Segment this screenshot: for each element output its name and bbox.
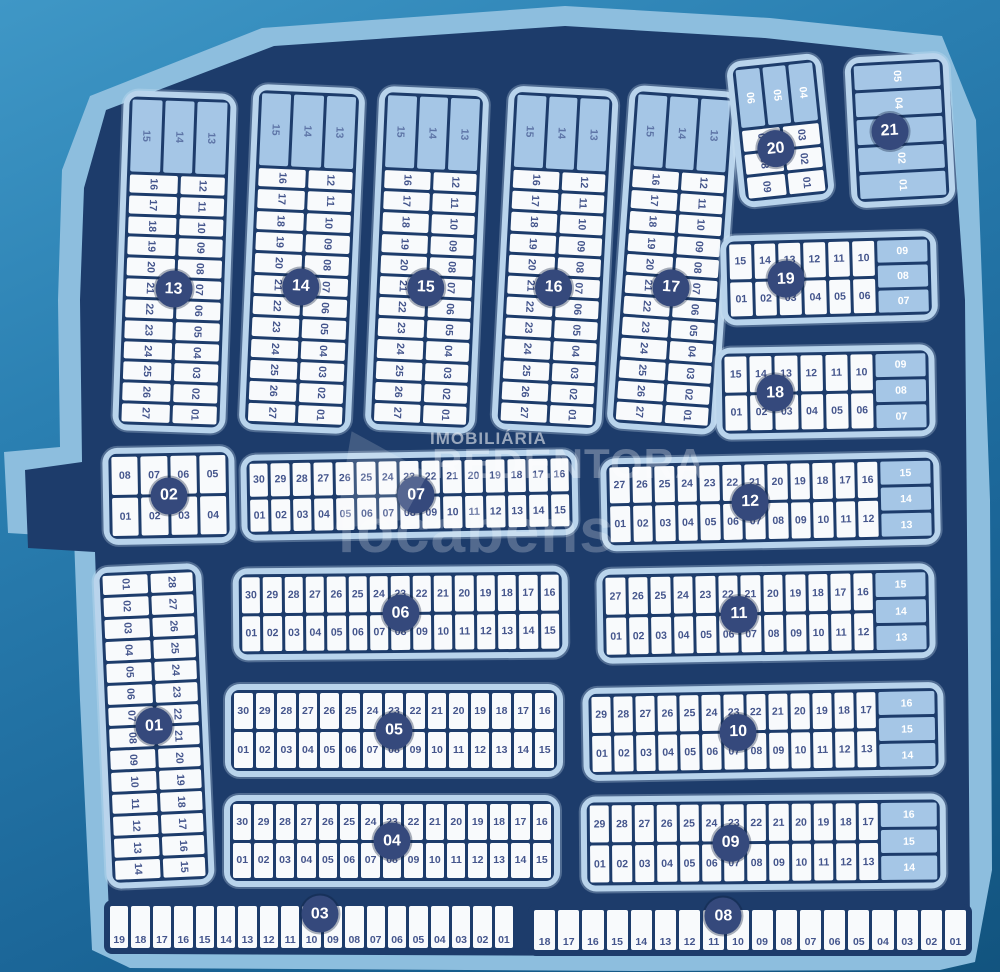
lot-cell: 03 — [104, 618, 150, 639]
lot-number: 01 — [188, 409, 200, 421]
lot-cell: 04 — [200, 496, 227, 534]
lot-cell: 20 — [791, 804, 811, 841]
lot-number: 16 — [901, 697, 913, 709]
lot-cell: 23 — [505, 318, 552, 339]
lot-cell: 03 — [293, 498, 312, 531]
lot-number: 01 — [735, 293, 747, 305]
lot-cell: 01 — [112, 498, 139, 536]
lot-number: 13 — [901, 519, 913, 531]
lot-number: 26 — [661, 708, 673, 720]
lot-number: 02 — [895, 152, 908, 164]
lot-number: 18 — [840, 816, 852, 828]
lot-number: 13 — [131, 841, 143, 853]
lot-number: 16 — [903, 809, 915, 821]
lot-cell: 13 — [881, 513, 931, 537]
lot-cell: 26 — [632, 466, 652, 502]
lot-cell: 01 — [592, 736, 612, 772]
lot-number: 10 — [858, 252, 870, 264]
lot-number: 14 — [555, 127, 568, 139]
lot-number: 17 — [839, 474, 851, 486]
lot-number: 10 — [813, 626, 825, 638]
lot-number: 03 — [659, 517, 671, 529]
lot-cell: 15 — [551, 494, 570, 527]
lot-number: 27 — [609, 590, 621, 602]
lot-number: 17 — [860, 704, 872, 716]
lot-number: 11 — [576, 198, 589, 210]
lot-cell: 02 — [299, 383, 344, 403]
lot-side: 090807 — [877, 239, 929, 312]
lot-cell: 02 — [633, 505, 653, 541]
lot-cell: 17 — [383, 191, 430, 211]
lot-cell: 15 — [881, 829, 937, 853]
lot-number: 10 — [856, 366, 868, 378]
lot-number: 26 — [661, 817, 673, 829]
lot-cell: 02 — [921, 910, 942, 950]
lot-number: 23 — [699, 588, 711, 600]
lot-number: 09 — [790, 627, 802, 639]
lot-number: 01 — [120, 511, 132, 523]
lot-cell: 30 — [234, 693, 253, 729]
lot-cell: 11 — [432, 193, 476, 213]
lot-number: 06 — [391, 934, 403, 948]
lot-cell: 15 — [875, 572, 925, 597]
lot-number: 08 — [780, 936, 792, 950]
lot-number: 05 — [442, 324, 454, 336]
lot-number: 15 — [734, 255, 746, 267]
lot-cell: 26 — [319, 804, 337, 840]
lot-number: 18 — [501, 587, 513, 599]
lot-number: 06 — [319, 302, 331, 314]
lot-cell: 09 — [791, 502, 811, 538]
lot-cell: 09 — [178, 239, 223, 258]
lot-cell: 19 — [159, 769, 202, 790]
lot-band: 151413 — [514, 95, 610, 172]
lot-number: 28 — [288, 589, 300, 601]
lot-number: 17 — [515, 816, 527, 828]
lot-number: 01 — [254, 509, 266, 521]
lot-number: 23 — [639, 321, 652, 333]
lot-number: 01 — [119, 578, 131, 590]
lot-cell: 18 — [382, 212, 429, 232]
lot-cell: 19 — [812, 693, 832, 729]
lot-cell: 18 — [511, 212, 558, 233]
lot-number: 05 — [891, 70, 904, 82]
lot-number: 12 — [196, 180, 208, 192]
lot-number: 13 — [511, 505, 523, 517]
lot-cell: 17 — [514, 693, 533, 729]
lot-number: 05 — [700, 628, 712, 640]
lot-number: 13 — [205, 132, 217, 144]
lot-cell: 14 — [545, 96, 577, 169]
lot-number: 10 — [795, 744, 807, 756]
lot-cell: 19 — [814, 803, 834, 840]
lot-number: 22 — [143, 303, 155, 315]
lot-cell: 01 — [725, 395, 748, 431]
lot-number: 03 — [640, 747, 652, 759]
lot-cell: 26 — [375, 382, 422, 402]
lot-cell: 25 — [250, 360, 298, 380]
lot-number: 08 — [772, 515, 784, 527]
lot-cell: 08 — [768, 503, 788, 539]
lot-cell: 25 — [342, 693, 361, 729]
lot-cell: 11 — [828, 241, 851, 276]
lot-number: 26 — [339, 472, 351, 484]
lot-cell: 01 — [233, 843, 251, 879]
lot-number: 01 — [237, 744, 249, 756]
lot-number: 24 — [706, 817, 718, 829]
lot-number: 21 — [429, 816, 441, 828]
lot-number: 13 — [895, 632, 907, 644]
lot-cell: 02 — [424, 384, 468, 404]
lot-cell: 13 — [490, 843, 508, 879]
lot-number: 08 — [895, 385, 907, 397]
lot-number: 04 — [877, 936, 889, 950]
lot-cell: 09 — [786, 614, 806, 651]
lot-number: 14 — [132, 863, 144, 875]
lot-cell: 12 — [471, 732, 490, 768]
lot-number: 14 — [675, 127, 688, 139]
lot-cell: 26 — [628, 577, 648, 614]
lot-cell: 02 — [103, 596, 149, 617]
lot-number: 19 — [489, 470, 501, 482]
lot-cell: 03 — [668, 363, 712, 384]
lot-number: 29 — [594, 818, 606, 830]
lot-cell: 29 — [590, 805, 610, 842]
lot-cell: 12 — [308, 170, 353, 190]
lot-number: 02 — [189, 388, 201, 400]
lot-cell: 09 — [110, 749, 156, 770]
lot-cell: 15 — [729, 244, 752, 279]
block-18: 15141312111001020304050609080718 — [715, 344, 936, 440]
lot-number: 04 — [662, 747, 674, 759]
lot-cell: 07 — [878, 289, 929, 312]
lot-number: 01 — [245, 628, 257, 640]
lot-cell: 26 — [657, 805, 677, 842]
lot-number: 14 — [759, 255, 771, 267]
lot-number: 09 — [410, 744, 422, 756]
lot-cell: 08 — [776, 910, 797, 950]
lot-side: 151413 — [880, 461, 932, 537]
lot-number: 16 — [544, 586, 556, 598]
lot-number: 14 — [533, 504, 545, 516]
lot-number: 26 — [636, 479, 648, 491]
lot-cell: 20 — [455, 575, 474, 611]
lot-number: 16 — [539, 705, 551, 717]
lot-number: 06 — [343, 854, 355, 866]
lot-number: 04 — [661, 857, 673, 869]
lot-number: 24 — [677, 589, 689, 601]
lot-number: 03 — [190, 367, 202, 379]
lot-band: 151413 — [633, 94, 730, 172]
lot-number: 15 — [395, 126, 407, 138]
lot-number: 12 — [863, 513, 875, 525]
lot-cell: 26 — [152, 616, 195, 637]
lot-number: 13 — [861, 743, 873, 755]
lot-cell: 20 — [447, 804, 465, 840]
lot-number: 07 — [382, 507, 394, 519]
lot-number: 08 — [193, 263, 205, 275]
lot-cell: 18 — [834, 692, 854, 728]
lot-cell: 19 — [628, 232, 675, 253]
block-10: 2928272625242322212019181701020304050607… — [582, 682, 945, 781]
lot-cell: 05 — [320, 732, 339, 768]
lot-cell: 16 — [162, 835, 205, 856]
lot-cell: 06 — [349, 615, 368, 651]
lot-cell: 16 — [858, 462, 878, 498]
lot-cell: 27 — [634, 805, 654, 842]
lot-number: 27 — [317, 473, 329, 485]
lot-number: 05 — [318, 323, 330, 335]
blocks-layer: 0102030405060708091011121314282726252423… — [0, 0, 1000, 972]
lot-cell: 13 — [876, 626, 926, 651]
lot-cell: 18 — [160, 791, 203, 812]
lot-cell: 24 — [677, 466, 697, 502]
lot-cell: 09 — [752, 910, 773, 950]
lot-cell: 01 — [550, 405, 594, 425]
lot-cell: 19 — [785, 574, 805, 611]
lot-cell: 27 — [609, 467, 629, 503]
lot-number: 05 — [191, 325, 203, 337]
lot-number: 20 — [272, 257, 284, 269]
lot-number: 12 — [472, 854, 484, 866]
lot-number: 01 — [596, 748, 608, 760]
lot-cell: 26 — [320, 693, 339, 729]
lot-number: 18 — [274, 215, 286, 227]
lot-number: 17 — [862, 816, 874, 828]
lot-number: 20 — [767, 587, 779, 599]
lot-number: 03 — [288, 627, 300, 639]
lot-cell: 10 — [678, 215, 722, 236]
lot-number: 02 — [682, 388, 695, 400]
lot-number: 14 — [515, 854, 527, 866]
lot-cell: 17 — [528, 459, 547, 492]
lot-number: 11 — [831, 366, 842, 378]
lot-cell: 05 — [762, 65, 792, 125]
lot-number: 10 — [195, 221, 207, 233]
lot-cell: 12 — [433, 172, 477, 192]
lot-number: 18 — [528, 216, 541, 228]
lot-cell: 25 — [650, 577, 670, 614]
lot-cell: 19 — [790, 463, 810, 499]
lot-cell: 17 — [835, 462, 855, 498]
lot-number: 27 — [266, 406, 278, 418]
lot-band: 060504 — [735, 62, 818, 128]
lot-number: 05 — [831, 405, 843, 417]
lot-number: 12 — [263, 934, 275, 948]
lot-number: 08 — [321, 259, 333, 271]
lot-number: 05 — [705, 516, 717, 528]
lot-number: 06 — [352, 627, 364, 639]
lot-cell: 19 — [255, 232, 303, 252]
lot-number: 02 — [477, 934, 489, 948]
lot-number: 30 — [253, 474, 265, 486]
lot-number: 06 — [859, 290, 871, 302]
lot-cell: 19 — [381, 234, 428, 254]
lot-number: 19 — [174, 774, 186, 786]
lot-number: 16 — [536, 816, 548, 828]
lot-number: 17 — [400, 195, 412, 207]
lot-number: 16 — [147, 178, 159, 190]
lot-number: 14 — [523, 625, 535, 637]
lot-number: 05 — [686, 325, 699, 337]
lot-number: 15 — [140, 130, 152, 142]
lot-number: 02 — [315, 387, 327, 399]
lot-number: 03 — [297, 509, 309, 521]
lot-cell: 29 — [271, 463, 290, 496]
lot-number: 09 — [408, 854, 420, 866]
lot-cell: 05 — [826, 393, 849, 429]
lot-number: 04 — [301, 854, 313, 866]
lot-number: 19 — [527, 237, 540, 249]
lot-number: 25 — [268, 364, 280, 376]
lot-number: 24 — [365, 816, 377, 828]
lot-number: 19 — [145, 241, 157, 253]
lot-cell: 15 — [385, 95, 417, 168]
lot-number: 23 — [269, 321, 281, 333]
lot-cell: 05 — [848, 910, 869, 950]
lot-number: 22 — [416, 588, 428, 600]
lot-cell: 10 — [852, 241, 875, 276]
lot-number: 24 — [268, 343, 280, 355]
lot-cell: 01 — [610, 506, 630, 542]
lot-side: 090807 — [875, 353, 926, 428]
lot-number: 03 — [795, 129, 808, 142]
lot-number: 23 — [704, 477, 716, 489]
lot-cell: 06 — [853, 278, 876, 313]
lot-cell: 10 — [426, 843, 444, 879]
lot-cell: 12 — [858, 501, 878, 537]
lot-cell: 10 — [813, 502, 833, 538]
lot-number: 07 — [572, 282, 585, 294]
lot-row: 181716151413121110090807060504030201 — [534, 910, 966, 950]
lot-number: 26 — [324, 705, 336, 717]
block-07: 3029282726252423222120191817160102030405… — [240, 449, 578, 541]
lot-number: 15 — [269, 124, 281, 136]
lot-number: 20 — [643, 258, 656, 270]
block-grid: 1514131617181920212223242526271211100908… — [245, 90, 359, 428]
lot-cell: 25 — [123, 362, 171, 381]
lot-cell: 05 — [319, 843, 337, 879]
lot-number: 02 — [258, 854, 270, 866]
lot-cell: 14 — [881, 487, 931, 511]
lot-number: 09 — [896, 245, 908, 257]
block-06: 3029282726252423222120191817160102030405… — [233, 566, 569, 661]
lot-number: 17 — [532, 469, 544, 481]
lot-cell: 17 — [129, 195, 177, 214]
lot-cell: 24 — [504, 339, 551, 360]
block-09: 2928272625242322212019181701020304050607… — [581, 793, 947, 891]
lot-number: 15 — [539, 744, 551, 756]
lot-number: 10 — [128, 776, 140, 788]
lot-number: 07 — [895, 410, 907, 422]
lot-cell: 21 — [443, 460, 462, 493]
lot-cell: 26 — [327, 576, 346, 612]
lot-cell: 19 — [110, 906, 128, 948]
lot-number: 26 — [392, 386, 404, 398]
lot-cell: 17 — [511, 804, 529, 840]
lot-cell: 18 — [836, 803, 856, 840]
lot-cell: 01 — [495, 906, 513, 948]
lot-number: 11 — [196, 201, 208, 213]
lot-number: 22 — [408, 816, 420, 828]
lot-number: 05 — [834, 290, 846, 302]
lot-cell: 23 — [622, 317, 669, 338]
lot-cell: 13 — [498, 613, 517, 649]
lot-number: 04 — [318, 508, 330, 520]
lot-cell: 27 — [306, 577, 325, 613]
lot-number: 09 — [127, 754, 139, 766]
lot-cell: 08 — [764, 615, 784, 652]
lot-number: 03 — [178, 510, 190, 522]
lot-cell: 18 — [490, 804, 508, 840]
lot-number: 02 — [798, 152, 811, 165]
lot-number: 16 — [862, 474, 874, 486]
lot-cell: 26 — [502, 381, 549, 402]
lot-number: 02 — [275, 509, 287, 521]
lot-cell: 04 — [872, 910, 893, 950]
lot-number: 19 — [816, 705, 828, 717]
lot-number: 19 — [480, 587, 492, 599]
lot-number: 24 — [706, 707, 718, 719]
lot-cell: 01 — [859, 171, 946, 200]
lot-number: 24 — [382, 472, 394, 484]
lot-number: 12 — [840, 856, 852, 868]
lot-cell: 15 — [541, 613, 560, 649]
lot-cell: 01 — [423, 405, 467, 425]
lot-cell: 23 — [700, 465, 720, 501]
lot-number: 19 — [794, 475, 806, 487]
lot-number: 06 — [688, 303, 701, 315]
lot-cell: 17 — [558, 910, 579, 950]
lot-number: 08 — [445, 261, 457, 273]
lot-cell: 28 — [276, 804, 294, 840]
lot-number: 18 — [511, 469, 523, 481]
lot-cell: 25 — [376, 360, 423, 380]
lot-number: 03 — [639, 857, 651, 869]
lot-cell: 02 — [666, 384, 710, 405]
lot-number: 01 — [314, 409, 326, 421]
lot-number: 02 — [120, 600, 132, 612]
lot-cell: 16 — [878, 691, 934, 715]
lot-number: 30 — [237, 705, 249, 717]
lot-cell: 01 — [606, 617, 626, 654]
lot-number: 08 — [119, 470, 131, 482]
lot-cell: 04 — [804, 280, 827, 315]
lot-number: 11 — [695, 198, 708, 210]
lot-number: 25 — [636, 364, 649, 376]
block-grid: 151413121110010203040506090807 — [726, 236, 932, 319]
block-12: 2726252423222120191817160102030405060708… — [600, 451, 941, 551]
lot-number: 12 — [684, 936, 696, 950]
lot-number: 08 — [751, 857, 763, 869]
lot-number: 17 — [147, 199, 159, 211]
lot-number: 12 — [130, 819, 142, 831]
lot-cell: 04 — [553, 341, 597, 361]
lot-number: 18 — [646, 216, 659, 228]
lot-cell: 28 — [292, 463, 311, 496]
lot-cell: 13 — [508, 494, 527, 527]
lot-cell: 04 — [299, 732, 318, 768]
lot-cell: 01 — [665, 405, 709, 426]
lot-number: 25 — [168, 642, 180, 654]
lot-number: 05 — [684, 857, 696, 869]
lot-cell: 25 — [340, 804, 358, 840]
lot-cell: 12 — [854, 613, 874, 650]
lot-number: 03 — [440, 366, 452, 378]
lot-cell: 05 — [175, 322, 220, 341]
lot-cell: 16 — [540, 575, 559, 611]
block-number-badge: 09 — [712, 824, 749, 861]
